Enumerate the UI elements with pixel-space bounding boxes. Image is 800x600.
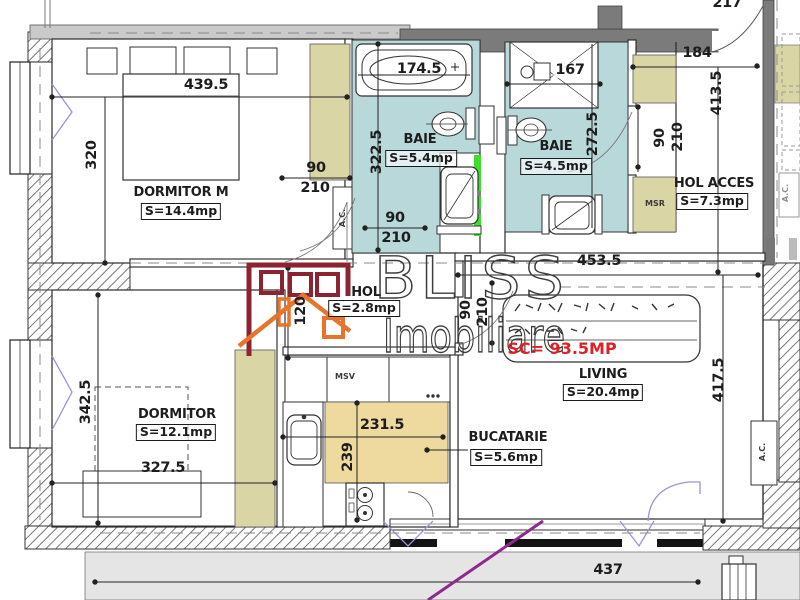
sliding-panel [505,539,622,547]
room-label-hol-acces: HOL ACCES [674,177,754,190]
room-label-dormitor-m: DORMITOR M [133,186,228,199]
ac-label-dormitor-m: A.C. [339,209,347,227]
msv-label: MSV [335,373,355,381]
dim-balcony: 437 [593,563,622,578]
area-label-baie-1: S=5.4mp [385,150,457,167]
dim-door-width: 90 [306,161,326,176]
dim-kitchen-height: 239 [341,442,356,471]
area-label-dormitor-m: S=14.4mp [141,203,221,220]
ac-label-neighbor: A.C. [782,184,790,202]
dim-dorm-m-width: 439.5 [184,78,228,93]
stove [346,483,384,526]
room-label-bucatarie: BUCATARIE [469,431,548,444]
area-label-living: S=20.4mp [563,384,643,401]
total-area-sc: SC= 93.5MP [507,341,616,357]
dim-door-width: 90 [385,211,405,226]
area-label-hol: S=2.8mp [328,300,400,317]
dim-hol-height: 120 [294,296,309,325]
dim-door-width: 90 [653,128,668,148]
dim-entry: 217 [712,0,741,11]
ac-label-living: A.C. [759,443,767,461]
dim-living-height: 417.5 [712,358,727,402]
room-label-dormitor: DORMITOR [138,408,216,421]
msr-label: MSR [645,200,665,208]
wall-between-bedrooms [28,263,130,290]
sliding-panel [657,539,705,547]
dim-kitchen-width: 231.5 [360,418,404,433]
dim-door-width: 90 [459,300,474,320]
area-label-bucatarie: S=5.6mp [470,449,542,466]
dim-dorm-m-height: 320 [85,140,100,169]
plan-drawing: BLISS Imobiliare [0,0,800,600]
room-label-living: LIVING [579,368,627,381]
dim-dorm-height: 342.5 [79,380,94,424]
sliding-window-frame [390,519,705,530]
wall-right-lower [779,318,800,482]
floor-plan: BLISS Imobiliare DORMITOR M S=14.4mp 439… [0,0,800,600]
dim-baie-1-height2: 322.5 [370,130,385,174]
room-label-baie-2: BAIE [540,140,573,153]
kitchen-door-opening [451,478,457,524]
entry-door-opening [712,31,762,51]
wall-bottom [25,526,390,549]
wall-bottom-right [703,526,800,550]
area-label-dormitor: S=12.1mp [136,424,216,441]
area-label-baie-2: S=4.5mp [520,158,592,175]
dim-door-height: 210 [381,231,410,246]
kitchen-sink [287,415,321,465]
bed-dormitor-m [87,47,277,180]
dim-door-height: 210 [671,122,686,151]
sliding-panel [387,539,437,547]
sink-baie-2 [542,195,602,234]
dim-bathtub: 174.5 [397,62,441,77]
dim-dorm-width: 327.5 [141,461,185,476]
dim-shower: 167 [553,63,586,78]
wardrobe-dormitor [235,350,275,527]
cabinet-msv [285,357,327,402]
dim-acces-width: 184 [682,46,711,61]
dim-acces-height: 413.5 [710,71,725,115]
dim-living-width: 453.5 [577,254,621,269]
dim-door-height: 210 [476,297,491,326]
kitchen-fixtures [283,357,450,527]
room-label-baie-1: BAIE [404,133,437,146]
area-label-hol-acces: S=7.3mp [676,193,748,210]
wall-right-dark [763,0,774,265]
dim-door-height: 210 [300,181,329,196]
wall-top-light [30,25,410,39]
dim-baie-2-height2: 272.5 [586,112,601,156]
room-label-hol: HOL [351,286,381,299]
